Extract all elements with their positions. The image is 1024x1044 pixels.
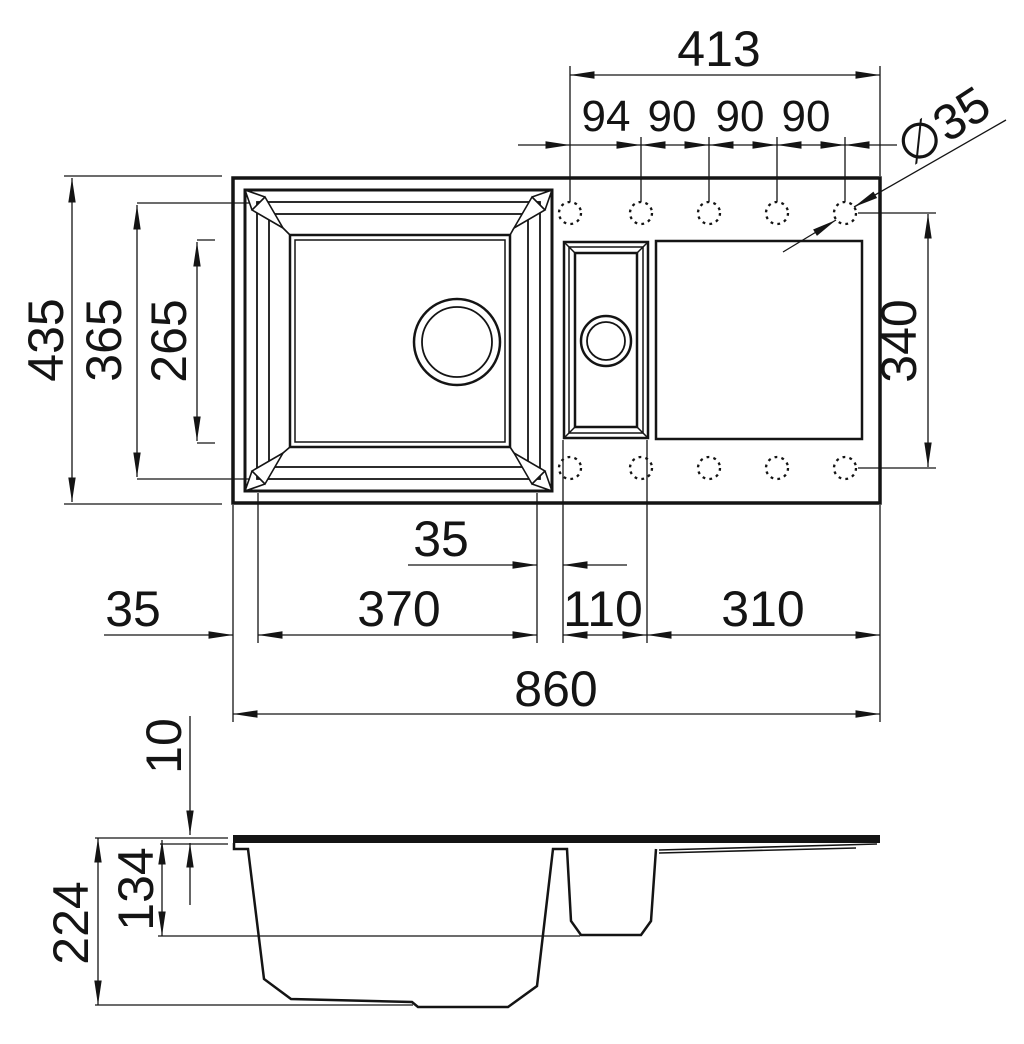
dim-hole-diameter: ∅35 xyxy=(886,75,1000,176)
dim-drainer-width: 310 xyxy=(721,581,804,637)
drawing-canvas: 413 94 90 90 90 ∅35 435 365 265 340 35 3… xyxy=(0,0,1024,1044)
tap-hole xyxy=(698,457,720,479)
main-bowl-rim-inner xyxy=(269,214,528,467)
main-bowl xyxy=(245,190,552,491)
main-bowl-rim-mid xyxy=(257,202,540,479)
half-bowl-rim-outer xyxy=(564,242,648,438)
tap-hole xyxy=(698,202,720,224)
dim-half-bowl-width: 110 xyxy=(563,581,643,637)
dim-hole-pitch-4: 90 xyxy=(782,92,831,141)
dimension-lines xyxy=(72,75,1006,1005)
dim-main-bowl-width: 370 xyxy=(357,581,440,637)
main-bowl-floor-outer xyxy=(290,235,510,447)
extension-lines xyxy=(64,66,936,1005)
half-drain-hole-outer xyxy=(581,316,631,366)
sink-outline xyxy=(233,178,880,503)
tap-hole xyxy=(559,457,581,479)
dim-overall-depth: 435 xyxy=(18,298,74,381)
tap-hole xyxy=(630,457,652,479)
drainboard xyxy=(656,241,862,439)
section-view xyxy=(233,835,880,1007)
dim-drainer-hole-span: 340 xyxy=(871,299,927,382)
dim-left-edge-offset: 35 xyxy=(105,581,161,637)
dim-bowl-outer-depth: 365 xyxy=(76,298,132,381)
tap-hole xyxy=(559,202,581,224)
tap-hole xyxy=(834,202,856,224)
tap-hole xyxy=(834,457,856,479)
half-bowl-corner-bevels xyxy=(564,242,648,438)
main-drain-hole-outer xyxy=(414,299,500,385)
tap-hole xyxy=(766,457,788,479)
dim-bowl-inner-depth: 265 xyxy=(141,299,197,382)
dimension-labels: 413 94 90 90 90 ∅35 435 365 265 340 35 3… xyxy=(18,21,1000,965)
dim-half-bowl-depth: 134 xyxy=(108,847,164,930)
plan-view xyxy=(233,178,880,503)
main-bowl-floor-inner xyxy=(295,240,505,442)
sink-technical-drawing: 413 94 90 90 90 ∅35 435 365 265 340 35 3… xyxy=(0,0,1024,1044)
dim-hole-pitch-1: 94 xyxy=(582,92,631,141)
dim-hole-pitch-3: 90 xyxy=(716,92,765,141)
half-bowl xyxy=(564,242,648,438)
half-drain-hole-inner xyxy=(587,322,625,360)
main-drain-hole-inner xyxy=(422,307,492,377)
half-bowl-rim-inner xyxy=(575,253,637,427)
tap-hole xyxy=(630,202,652,224)
dim-main-bowl-depth: 224 xyxy=(43,881,99,964)
section-top-rim xyxy=(233,835,880,843)
dim-rim-thickness: 10 xyxy=(136,718,192,774)
section-drainboard-slope xyxy=(659,844,877,853)
tap-hole xyxy=(766,202,788,224)
dim-hole-pitch-2: 90 xyxy=(648,92,697,141)
section-bowl-profile xyxy=(234,843,656,1007)
dim-hole-span-overall: 413 xyxy=(677,21,760,77)
dim-overall-width: 860 xyxy=(514,661,597,717)
dim-bowl-gap: 35 xyxy=(413,511,469,567)
